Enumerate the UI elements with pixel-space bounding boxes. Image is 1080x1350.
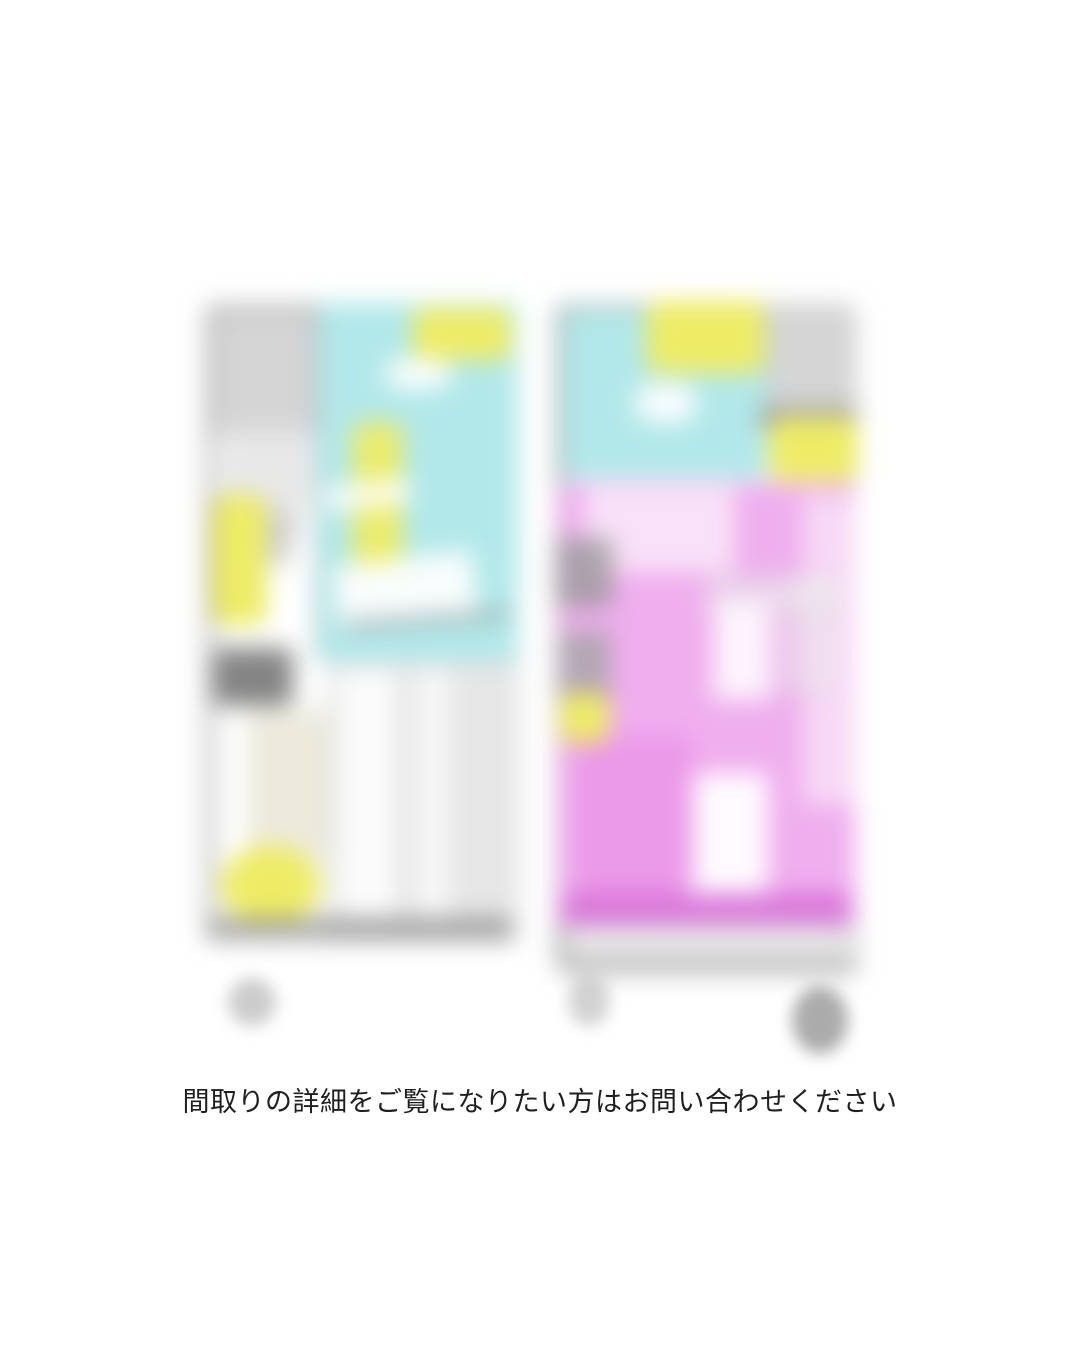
room-label-blur: [385, 358, 451, 390]
room-texture-block: [215, 312, 315, 432]
compass-mark-blur: [568, 976, 610, 1026]
bottom-wall: [559, 959, 855, 971]
room-label-blur: [713, 600, 771, 700]
caption-text: 間取りの詳細をご覧になりたい方はお問い合わせください: [0, 1082, 1080, 1122]
dark-fixture-block: [215, 648, 293, 706]
room-label-blur: [777, 587, 835, 695]
room-texture-block: [767, 307, 857, 415]
highlight-yellow-block: [213, 495, 267, 625]
table-column-blur: [340, 672, 395, 924]
floorplan-image-left[interactable]: [205, 300, 515, 940]
room-pink-deep-block: [563, 893, 851, 923]
compass-mark-blur: [228, 978, 276, 1026]
room-label-blur: [635, 383, 697, 423]
table-column-blur: [417, 672, 449, 924]
highlight-yellow-block: [413, 308, 511, 360]
floorplan-image-right[interactable]: [555, 295, 860, 980]
staircase-block: [688, 773, 768, 905]
highlight-yellow-block: [647, 301, 765, 373]
compass-mark-blur: [792, 986, 848, 1054]
room-pink-deep-block: [575, 735, 695, 895]
highlight-yellow-block: [770, 417, 858, 481]
room-tint-block: [247, 710, 332, 860]
bottom-wall: [211, 918, 511, 932]
fixture-gray-block: [555, 538, 613, 608]
highlight-yellow-block: [561, 693, 609, 743]
highlight-yellow-block: [221, 845, 321, 925]
room-texture-block: [223, 430, 311, 505]
